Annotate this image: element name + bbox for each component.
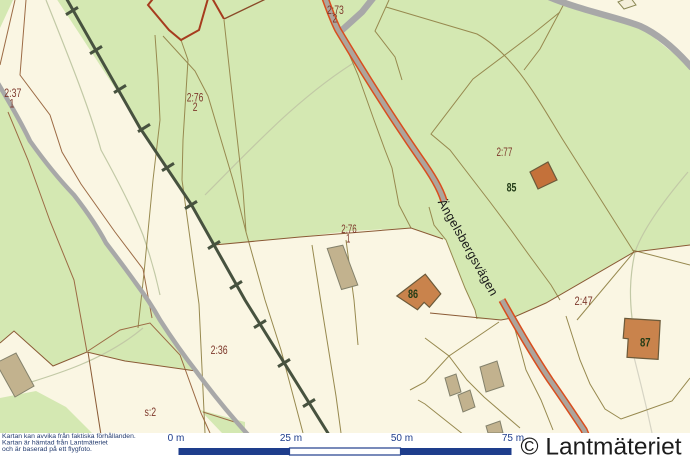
svg-text:och är baserad på ett flygfoto: och är baserad på ett flygfoto. bbox=[2, 445, 92, 453]
svg-text:© Lantmäteriet: © Lantmäteriet bbox=[521, 434, 682, 460]
svg-text:86: 86 bbox=[408, 289, 418, 301]
svg-text:2: 2 bbox=[333, 13, 338, 26]
svg-text:1: 1 bbox=[10, 97, 15, 111]
svg-text:50 m: 50 m bbox=[391, 433, 413, 444]
svg-text:87: 87 bbox=[640, 337, 651, 350]
svg-text:25 m: 25 m bbox=[280, 433, 302, 444]
svg-text:2:47: 2:47 bbox=[575, 295, 593, 308]
svg-text:85: 85 bbox=[507, 182, 517, 194]
svg-text:2:36: 2:36 bbox=[211, 344, 228, 358]
svg-text:1: 1 bbox=[346, 233, 351, 246]
svg-text:0 m: 0 m bbox=[168, 433, 185, 444]
svg-text:s:2: s:2 bbox=[145, 406, 157, 420]
svg-text:2:77: 2:77 bbox=[497, 147, 513, 160]
svg-text:2: 2 bbox=[193, 102, 198, 115]
